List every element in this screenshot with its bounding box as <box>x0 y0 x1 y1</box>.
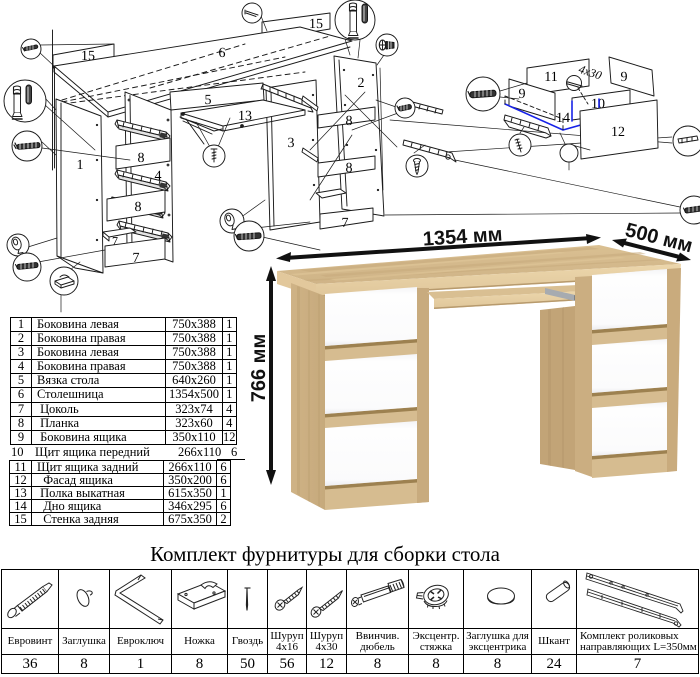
svg-text:766 мм: 766 мм <box>248 334 270 403</box>
